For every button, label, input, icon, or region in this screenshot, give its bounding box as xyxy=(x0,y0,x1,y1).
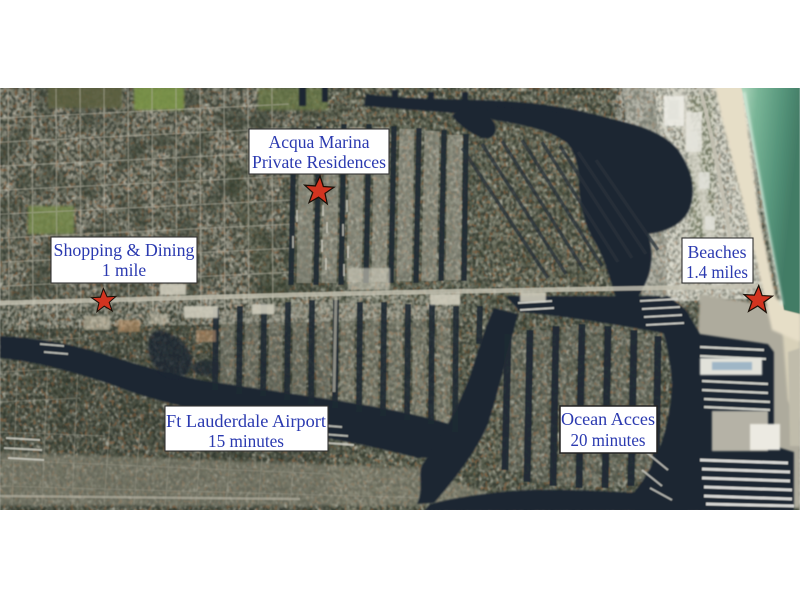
svg-text:Shopping & Dining: Shopping & Dining xyxy=(54,240,195,260)
svg-text:Beaches: Beaches xyxy=(688,242,747,262)
svg-text:Ft Lauderdale Airport: Ft Lauderdale Airport xyxy=(166,411,326,431)
svg-text:Private Residences: Private Residences xyxy=(252,152,386,172)
svg-text:20 minutes: 20 minutes xyxy=(571,430,646,450)
svg-text:1 mile: 1 mile xyxy=(102,260,146,280)
svg-text:1.4 miles: 1.4 miles xyxy=(686,262,748,282)
svg-text:Acqua Marina: Acqua Marina xyxy=(269,132,370,152)
svg-text:Ocean Acces: Ocean Acces xyxy=(561,409,655,429)
svg-text:15 minutes: 15 minutes xyxy=(208,431,284,451)
